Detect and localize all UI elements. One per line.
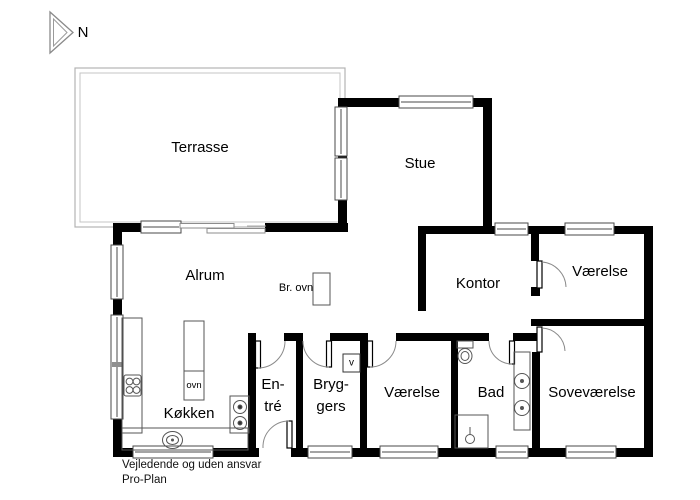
wood-stove <box>313 273 330 305</box>
opening-front-door <box>259 447 291 458</box>
door-arc-vaerelse-ne <box>542 262 566 287</box>
north-arrow-icon <box>50 12 73 53</box>
door-arc-front <box>263 421 289 448</box>
annotation-br-ovn: Br. ovn <box>279 282 313 294</box>
door-arc-sove <box>542 328 565 351</box>
door-arc-entre-top <box>258 341 285 368</box>
wall-bad-sove-divider <box>532 352 540 457</box>
room-label-vaerelse-ne: Værelse <box>572 264 628 281</box>
annotation-ovn: ovn <box>186 381 201 391</box>
disclaimer-line2: Pro-Plan <box>122 473 261 488</box>
north-label: N <box>78 25 89 42</box>
room-label-stue: Stue <box>405 156 436 173</box>
wall-alrum-north-b <box>265 223 348 232</box>
room-label-entre-line2: tré <box>264 399 282 416</box>
window-mullion-tick <box>112 362 122 367</box>
door-arc-bryggers <box>303 341 329 367</box>
vanity-counter <box>514 352 530 430</box>
floor-plan-drawing <box>0 0 700 500</box>
room-label-koekken: Køkken <box>164 406 215 423</box>
door-arc-vaerelse-south <box>370 341 396 367</box>
wall-east <box>644 226 653 457</box>
wall-stue-east <box>483 98 492 234</box>
room-label-vaerelse-s: Værelse <box>384 385 440 402</box>
wall-kontor-east-upper <box>531 230 539 261</box>
sliding-door-panel-2 <box>207 229 265 234</box>
room-label-kontor: Kontor <box>456 276 500 293</box>
room-label-bryggers-line1: Bryg- <box>313 377 349 394</box>
door-leaf-vaerelse-south <box>368 341 373 367</box>
door-arc-bad <box>489 341 512 364</box>
room-label-bad: Bad <box>478 385 505 402</box>
room-label-terrasse: Terrasse <box>171 140 229 157</box>
annotation-vent: v <box>349 358 354 369</box>
stove-unit <box>230 396 249 433</box>
toilet-tank <box>457 341 473 348</box>
wall-bryggers-vaerelse-divider <box>360 341 367 457</box>
disclaimer-line1: Vejledende og uden ansvar <box>122 458 261 473</box>
room-label-entre-line1: En- <box>261 377 284 394</box>
wall-kontor-west <box>418 230 426 311</box>
door-leaf-vaerelse-ne <box>537 261 542 288</box>
sliding-door <box>180 224 266 234</box>
room-label-alrum: Alrum <box>185 268 224 285</box>
disclaimer: Vejledende og uden ansvar Pro-Plan <box>122 458 261 488</box>
door-leaf-sove <box>537 327 542 352</box>
wall-vaerelse-sove-divider <box>531 319 653 326</box>
room-label-sovevaerelse: Soveværelse <box>548 385 636 402</box>
door-leaf-bryggers <box>327 341 332 367</box>
wall-entre-bryggers-divider <box>296 341 303 457</box>
sliding-door-panel-1 <box>180 224 234 229</box>
floor-plan: N Terrasse Stue Alrum Br. ovn Kontor Vær… <box>0 0 700 500</box>
door-leaf-front <box>287 421 292 448</box>
door-leaf-entre-top <box>256 341 261 368</box>
toilet-icon <box>458 349 472 364</box>
floor-drain-icon <box>466 435 475 444</box>
room-label-bryggers-line2: gers <box>316 399 345 416</box>
